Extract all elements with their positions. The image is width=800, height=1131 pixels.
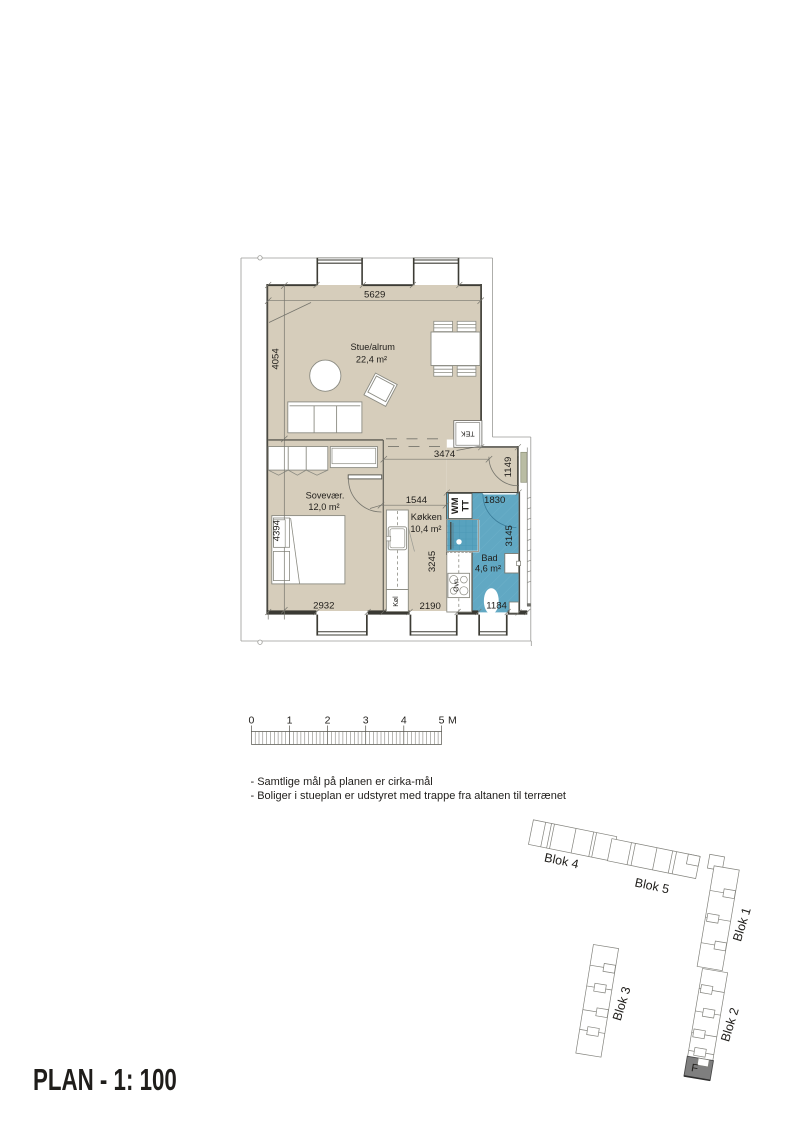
svg-text:3145: 3145: [504, 525, 515, 546]
svg-text:3245: 3245: [427, 551, 438, 572]
svg-text:Blok 1: Blok 1: [730, 906, 754, 943]
svg-text:PLAN - 1: 100: PLAN - 1: 100: [33, 1062, 177, 1096]
svg-text:4,6 m²: 4,6 m²: [475, 564, 501, 574]
svg-text:4394: 4394: [271, 519, 282, 541]
svg-text:1184: 1184: [486, 601, 507, 612]
svg-text:Ovn: Ovn: [454, 579, 461, 592]
svg-text:2: 2: [325, 715, 331, 727]
svg-text:Blok 5: Blok 5: [634, 876, 671, 897]
svg-text:Bad: Bad: [481, 553, 497, 563]
svg-text:- Boliger i stueplan er udstyr: - Boliger i stueplan er udstyret med tra…: [251, 790, 567, 802]
svg-text:4054: 4054: [271, 348, 282, 370]
svg-text:Stue/alrum: Stue/alrum: [350, 342, 395, 352]
svg-text:1: 1: [287, 715, 293, 727]
svg-text:TEK: TEK: [461, 430, 475, 437]
svg-text:3474: 3474: [434, 449, 456, 460]
svg-text:Køl: Køl: [393, 596, 400, 607]
svg-text:0: 0: [248, 715, 254, 727]
svg-text:1830: 1830: [484, 495, 505, 506]
svg-text:4: 4: [401, 715, 407, 727]
svg-text:Blok 3: Blok 3: [610, 985, 634, 1022]
svg-text:10,4 m²: 10,4 m²: [410, 524, 441, 534]
svg-text:5629: 5629: [364, 289, 385, 300]
svg-text:1149: 1149: [503, 457, 514, 478]
svg-text:M: M: [448, 715, 457, 727]
svg-text:22,4 m²: 22,4 m²: [356, 354, 387, 364]
svg-text:5: 5: [439, 715, 445, 727]
svg-text:Køkken: Køkken: [411, 512, 442, 522]
svg-text:1544: 1544: [406, 495, 428, 506]
svg-text:Blok 2: Blok 2: [718, 1006, 742, 1043]
svg-text:2932: 2932: [313, 601, 334, 612]
svg-text:12,0 m²: 12,0 m²: [308, 502, 339, 512]
svg-text:2190: 2190: [420, 601, 441, 612]
svg-text:TT: TT: [461, 500, 471, 512]
svg-text:WM: WM: [450, 497, 460, 514]
svg-text:- Samtlige mål på planen er ci: - Samtlige mål på planen er cirka-mål: [251, 776, 433, 788]
svg-text:3: 3: [363, 715, 369, 727]
svg-text:Sovevær.: Sovevær.: [306, 491, 345, 501]
